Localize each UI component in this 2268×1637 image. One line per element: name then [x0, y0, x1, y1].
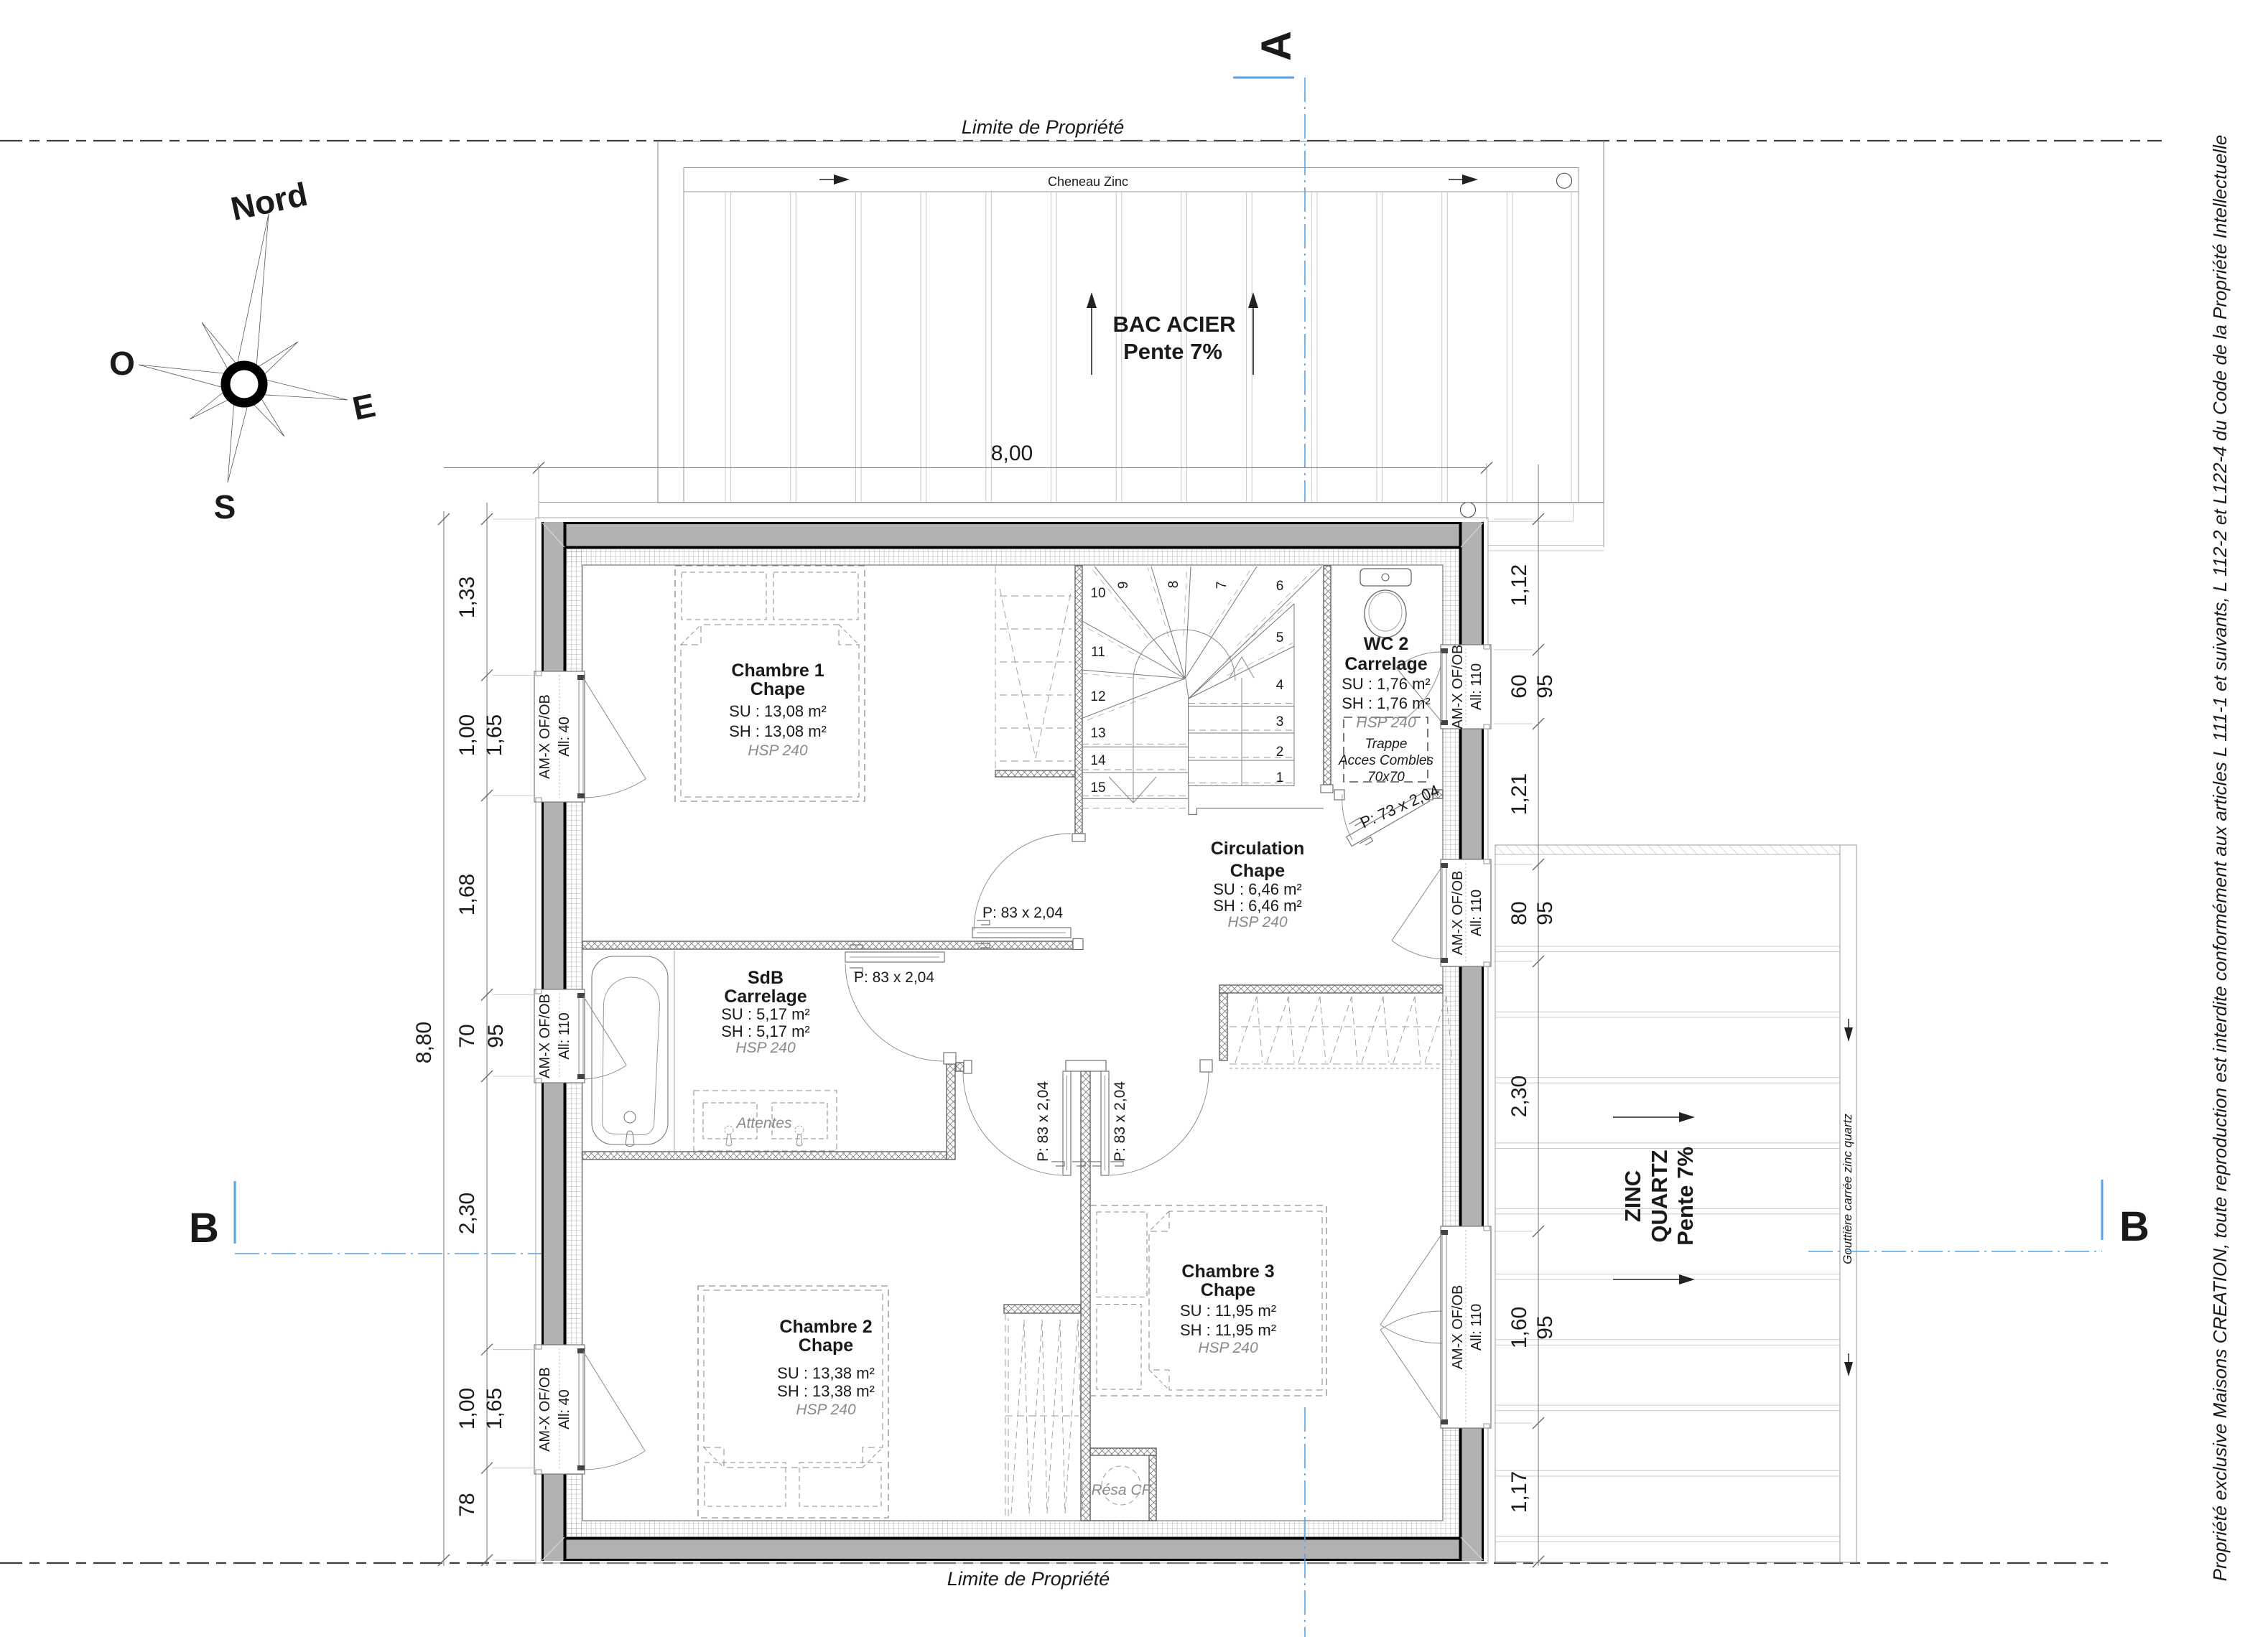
- svg-text:HSP 240: HSP 240: [1356, 714, 1416, 731]
- svg-text:70x70: 70x70: [1367, 770, 1405, 785]
- svg-text:Chape: Chape: [1230, 861, 1286, 881]
- svg-text:3: 3: [1276, 714, 1284, 729]
- svg-text:1: 1: [1276, 770, 1284, 785]
- svg-text:Propriété exclusive Maisons CR: Propriété exclusive Maisons CREATION, to…: [2209, 135, 2231, 1582]
- svg-text:9: 9: [1116, 582, 1131, 589]
- svg-text:Chambre 3: Chambre 3: [1181, 1261, 1274, 1282]
- svg-text:6: 6: [1276, 579, 1284, 594]
- svg-text:SU : 13,08 m²: SU : 13,08 m²: [729, 702, 827, 720]
- svg-text:Pente 7%: Pente 7%: [1673, 1147, 1698, 1246]
- svg-text:11: 11: [1091, 645, 1105, 660]
- svg-text:14: 14: [1090, 753, 1106, 768]
- svg-text:95: 95: [1533, 674, 1557, 698]
- svg-text:B: B: [189, 1205, 219, 1251]
- svg-text:12: 12: [1090, 689, 1105, 704]
- svg-text:8: 8: [1166, 581, 1181, 589]
- svg-text:HSP 240: HSP 240: [796, 1402, 856, 1418]
- svg-text:95: 95: [1533, 901, 1557, 925]
- svg-text:HSP 240: HSP 240: [1198, 1340, 1258, 1356]
- svg-text:1,00: 1,00: [455, 714, 479, 756]
- svg-text:SH : 6,46 m²: SH : 6,46 m²: [1213, 897, 1301, 915]
- svg-text:1,60: 1,60: [1507, 1307, 1531, 1348]
- svg-text:15: 15: [1090, 780, 1105, 796]
- svg-text:AM-X OF/OB: AM-X OF/OB: [537, 1367, 553, 1452]
- svg-text:O: O: [109, 345, 135, 382]
- svg-text:HSP 240: HSP 240: [735, 1040, 796, 1056]
- svg-text:Acces Combles: Acces Combles: [1338, 753, 1433, 768]
- svg-text:7: 7: [1214, 582, 1230, 589]
- svg-text:P: 83 x 2,04: P: 83 x 2,04: [854, 969, 934, 986]
- svg-text:P: 83 x 2,04: P: 83 x 2,04: [1035, 1081, 1051, 1162]
- svg-text:10: 10: [1090, 586, 1105, 601]
- svg-text:Circulation: Circulation: [1211, 839, 1305, 859]
- svg-text:Résa CF: Résa CF: [1092, 1482, 1152, 1498]
- svg-text:SH : 13,38 m²: SH : 13,38 m²: [777, 1382, 875, 1400]
- svg-text:All: 110: All: 110: [1469, 1304, 1484, 1351]
- svg-text:1,00: 1,00: [455, 1388, 479, 1430]
- svg-text:1,33: 1,33: [455, 577, 479, 618]
- svg-text:HSP 240: HSP 240: [1227, 914, 1288, 931]
- svg-text:1,12: 1,12: [1507, 564, 1531, 606]
- svg-text:All: 110: All: 110: [1469, 663, 1484, 710]
- svg-text:8,00: 8,00: [991, 442, 1033, 465]
- svg-text:AM-X OF/OB: AM-X OF/OB: [1450, 645, 1466, 729]
- svg-text:SU : 6,46 m²: SU : 6,46 m²: [1213, 880, 1301, 898]
- svg-text:2,30: 2,30: [1507, 1076, 1531, 1117]
- svg-text:8,80: 8,80: [412, 1022, 436, 1063]
- svg-text:Carrelage: Carrelage: [1344, 654, 1427, 674]
- svg-text:1,68: 1,68: [455, 874, 479, 915]
- svg-text:2,30: 2,30: [455, 1193, 479, 1234]
- svg-text:SU : 13,38 m²: SU : 13,38 m²: [777, 1364, 875, 1382]
- svg-text:1,17: 1,17: [1507, 1471, 1531, 1513]
- svg-text:SH : 11,95 m²: SH : 11,95 m²: [1180, 1321, 1276, 1339]
- svg-text:Pente 7%: Pente 7%: [1123, 339, 1222, 364]
- svg-text:All: 110: All: 110: [557, 1012, 572, 1059]
- svg-text:Carrelage: Carrelage: [724, 987, 807, 1007]
- svg-text:P: 83 x 2,04: P: 83 x 2,04: [1112, 1081, 1128, 1162]
- svg-text:S: S: [214, 488, 236, 526]
- svg-text:1,21: 1,21: [1507, 773, 1531, 815]
- svg-text:All: 40: All: 40: [557, 1389, 572, 1430]
- svg-text:SdB: SdB: [748, 968, 784, 988]
- svg-text:SH : 13,08 m²: SH : 13,08 m²: [729, 722, 827, 740]
- svg-text:95: 95: [1533, 1315, 1557, 1339]
- svg-text:Chambre 1: Chambre 1: [731, 661, 824, 681]
- svg-text:QUARTZ: QUARTZ: [1647, 1149, 1672, 1242]
- svg-text:13: 13: [1090, 726, 1105, 741]
- svg-text:All: 110: All: 110: [1469, 890, 1484, 936]
- svg-text:Limite de Propriété: Limite de Propriété: [947, 1568, 1110, 1590]
- svg-text:Limite de Propriété: Limite de Propriété: [962, 116, 1125, 138]
- svg-text:1,65: 1,65: [483, 1388, 506, 1430]
- svg-text:BAC ACIER: BAC ACIER: [1112, 312, 1235, 337]
- svg-text:SU : 11,95 m²: SU : 11,95 m²: [1180, 1302, 1276, 1320]
- svg-text:P: 83 x 2,04: P: 83 x 2,04: [982, 905, 1063, 921]
- svg-text:Attentes: Attentes: [735, 1115, 792, 1132]
- svg-text:SH : 1,76 m²: SH : 1,76 m²: [1342, 694, 1430, 712]
- svg-text:WC 2: WC 2: [1364, 634, 1409, 654]
- svg-text:95: 95: [484, 1024, 508, 1048]
- svg-text:70: 70: [455, 1024, 479, 1048]
- svg-text:1,65: 1,65: [483, 714, 506, 756]
- svg-text:SU : 1,76 m²: SU : 1,76 m²: [1342, 675, 1430, 693]
- svg-text:HSP 240: HSP 240: [748, 742, 808, 759]
- svg-text:A: A: [1253, 31, 1300, 61]
- svg-text:AM-X OF/OB: AM-X OF/OB: [537, 994, 553, 1078]
- svg-text:60: 60: [1507, 674, 1531, 698]
- svg-text:ZINC: ZINC: [1620, 1170, 1645, 1222]
- svg-text:AM-X OF/OB: AM-X OF/OB: [1450, 871, 1466, 956]
- svg-text:AM-X OF/OB: AM-X OF/OB: [537, 694, 553, 779]
- svg-text:SU : 5,17 m²: SU : 5,17 m²: [721, 1005, 809, 1023]
- svg-text:2: 2: [1276, 745, 1284, 760]
- svg-text:Chape: Chape: [1201, 1280, 1256, 1300]
- svg-text:Chambre 2: Chambre 2: [779, 1317, 872, 1337]
- svg-text:Cheneau Zinc: Cheneau Zinc: [1048, 174, 1128, 189]
- svg-text:5: 5: [1276, 630, 1284, 645]
- svg-text:78: 78: [455, 1493, 479, 1516]
- svg-text:4: 4: [1276, 678, 1284, 693]
- svg-text:SH : 5,17 m²: SH : 5,17 m²: [721, 1022, 809, 1040]
- svg-text:Trappe: Trappe: [1365, 737, 1408, 752]
- svg-text:Gouttière carrée zinc quartz: Gouttière carrée zinc quartz: [1841, 1114, 1854, 1264]
- svg-text:80: 80: [1507, 901, 1531, 925]
- svg-text:AM-X OF/OB: AM-X OF/OB: [1450, 1285, 1466, 1370]
- svg-text:B: B: [2119, 1203, 2150, 1250]
- svg-text:All: 40: All: 40: [557, 717, 572, 757]
- svg-text:Chape: Chape: [750, 679, 806, 699]
- svg-text:Chape: Chape: [799, 1335, 854, 1356]
